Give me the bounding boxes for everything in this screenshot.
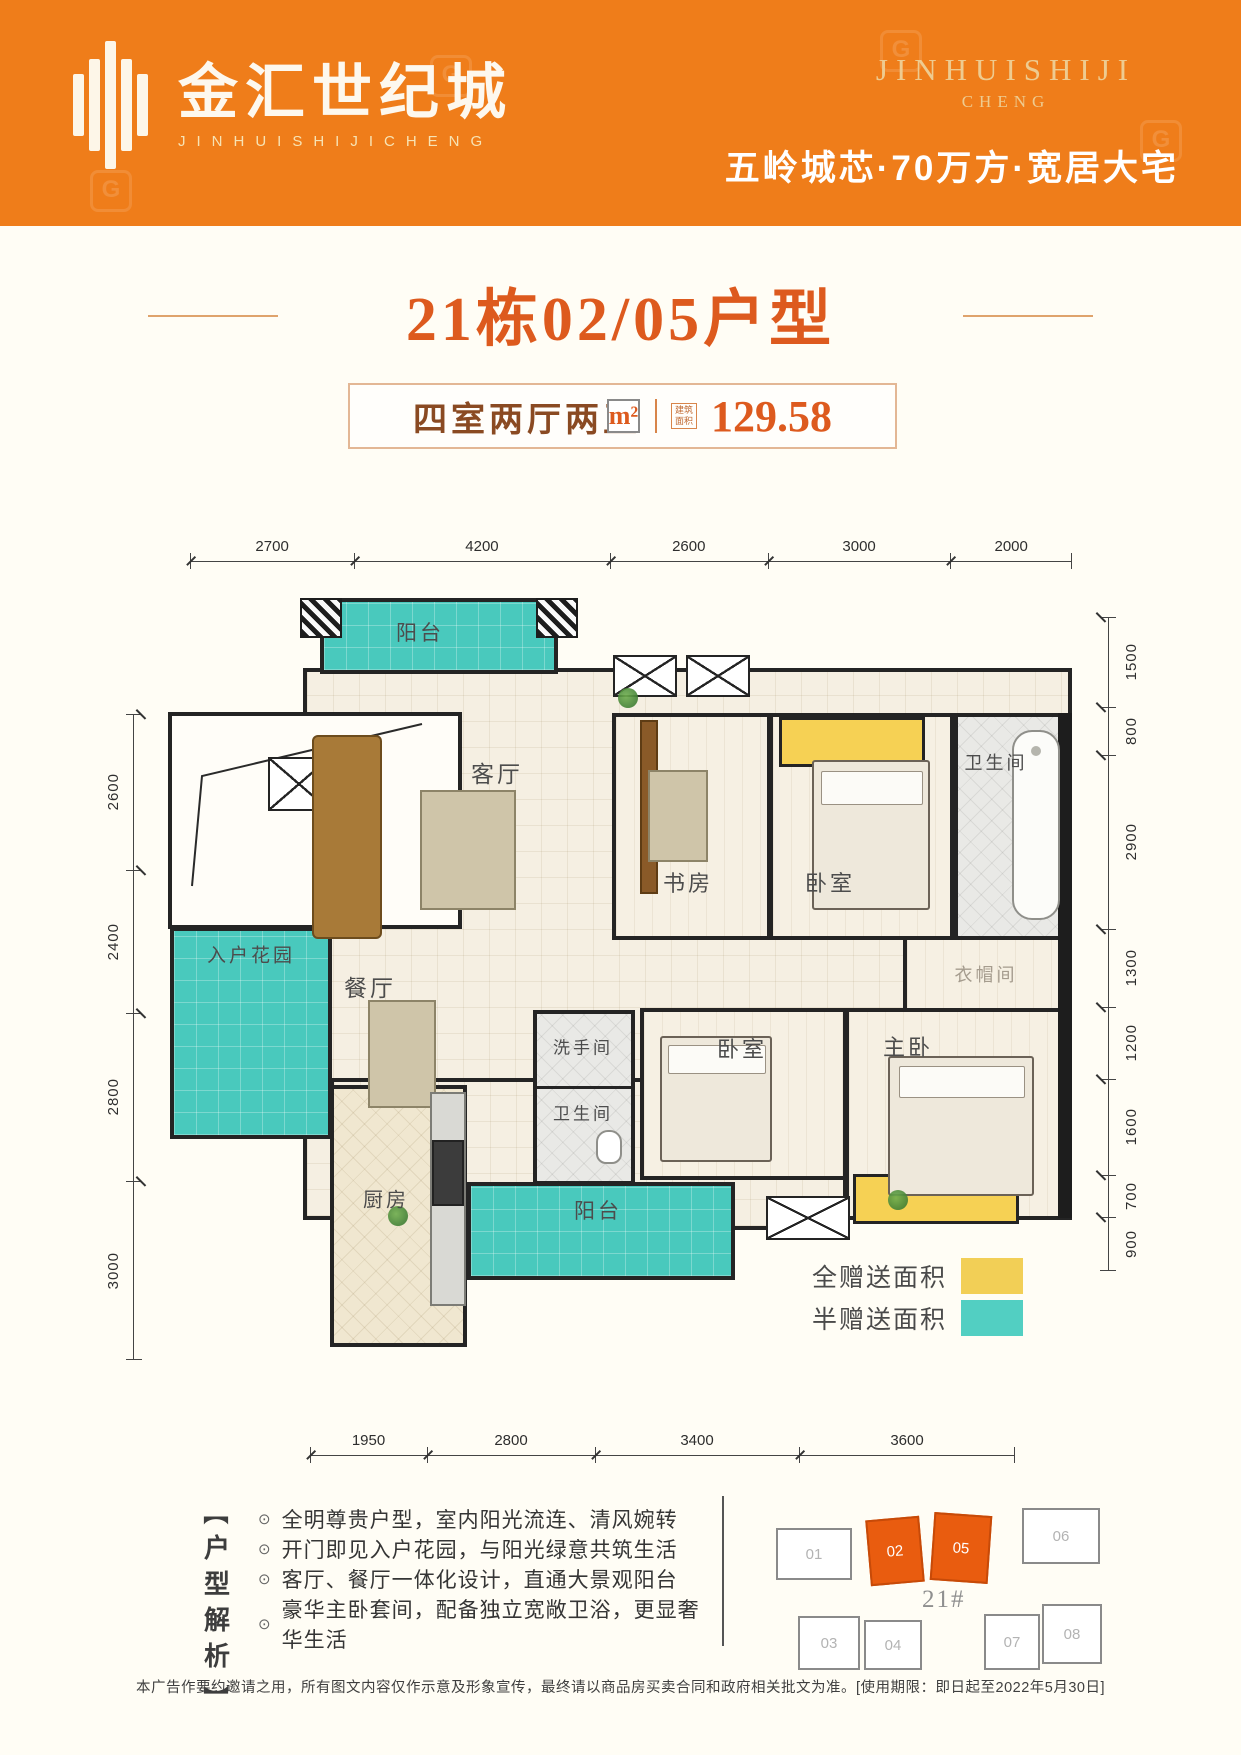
selling-point-text: 客厅、餐厅一体化设计，直通大景观阳台 <box>282 1564 678 1594</box>
room-label-kitchen: 厨房 <box>363 1184 409 1213</box>
bullet-icon: ⊙ <box>258 1615 272 1633</box>
unit-number: 03 <box>821 1635 838 1652</box>
dimension-chain-top: 2700 4200 2600 3000 2000 <box>190 538 1072 568</box>
wall-hatch <box>300 598 342 638</box>
unit-block-07: 07 <box>984 1614 1040 1670</box>
dim-value: 2800 <box>105 1078 122 1115</box>
room-label-bath-mid: 卫生间 <box>553 1100 613 1125</box>
outer-wall <box>1058 713 1072 1218</box>
legend-half-gift-swatch <box>961 1300 1023 1336</box>
unit-block-03: 03 <box>798 1616 860 1670</box>
legend-full-gift-label: 全赠送面积 <box>812 1258 947 1294</box>
dimension-chain-left: 2600 2400 2800 3000 <box>92 714 134 1360</box>
dimension-chain-right: 1500 800 2900 1300 1200 1600 700 900 <box>1108 617 1152 1271</box>
dim-value: 3400 <box>680 1432 713 1449</box>
plant-icon <box>888 1190 908 1210</box>
bullet-icon: ⊙ <box>258 1540 272 1558</box>
room-label-bathroom-top: 卫生间 <box>965 749 1028 775</box>
sofa-icon <box>312 735 382 939</box>
building-number-label: 21# <box>922 1586 966 1614</box>
unit-number: 07 <box>1004 1634 1021 1651</box>
floor-area-unit: m² <box>607 399 640 433</box>
toilet-icon <box>596 1130 622 1164</box>
dim-value: 2700 <box>255 538 288 555</box>
dim-value: 2600 <box>672 538 705 555</box>
unit-number: 02 <box>886 1542 904 1560</box>
room-label-bedroom-mid: 卧室 <box>717 1032 767 1064</box>
selling-points-list: ⊙ 全明尊贵户型，室内阳光流连、清风婉转 ⊙ 开门即见入户花园，与阳光绿意共筑生… <box>258 1504 708 1646</box>
room-label-master: 主卧 <box>883 1030 933 1062</box>
dining-table-icon <box>368 1000 436 1108</box>
selling-point-item: ⊙ 开门即见入户花园，与阳光绿意共筑生活 <box>258 1534 708 1564</box>
dimension-chain-bottom: 1950 2800 3400 3600 <box>310 1432 1015 1462</box>
desk-icon <box>648 770 708 862</box>
floor-area-stamp-icon: 建筑面积 <box>671 403 697 429</box>
dim-value: 900 <box>1123 1230 1140 1258</box>
bullet-icon: ⊙ <box>258 1570 272 1588</box>
unit-block-06: 06 <box>1022 1508 1100 1564</box>
ac-unit-icon <box>766 1196 850 1240</box>
room-label-dining: 餐厅 <box>344 969 396 1003</box>
unit-block-08: 08 <box>1042 1604 1102 1664</box>
room-label-bedroom-top: 卧室 <box>805 866 855 898</box>
room-label-living: 客厅 <box>471 755 523 789</box>
room-label-balcony-bottom: 阳台 <box>574 1195 622 1225</box>
brand-name: 金汇世纪城 <box>178 61 513 124</box>
dim-value: 700 <box>1123 1182 1140 1210</box>
dim-value: 1500 <box>1123 643 1140 680</box>
plant-icon <box>618 688 638 708</box>
watermark-icon: G <box>90 170 132 212</box>
dim-value: 2600 <box>105 773 122 810</box>
spec-badge: 四室两厅两卫 建筑面积 129.58 m² <box>348 383 897 449</box>
dim-value: 2900 <box>1123 823 1140 860</box>
dim-value: 2400 <box>105 923 122 960</box>
dim-value: 4200 <box>465 538 498 555</box>
brand-name-pinyin: JINHUISHIJICHENG <box>178 133 513 150</box>
wall-hatch <box>536 598 578 638</box>
unit-block-02-highlighted: 02 <box>865 1516 925 1586</box>
selling-point-item: ⊙ 客厅、餐厅一体化设计，直通大景观阳台 <box>258 1564 708 1594</box>
unit-block-05-highlighted: 05 <box>930 1512 993 1584</box>
unit-number: 04 <box>885 1637 902 1654</box>
wordmark-line1: JINHUISHIJI <box>841 52 1171 88</box>
legend-full-gift-swatch <box>961 1258 1023 1294</box>
room-label-balcony-top: 阳台 <box>396 617 444 647</box>
selling-point-text: 全明尊贵户型，室内阳光流连、清风婉转 <box>282 1504 678 1534</box>
dim-value: 3600 <box>890 1432 923 1449</box>
section-divider <box>722 1496 724 1646</box>
stove-icon <box>432 1140 464 1206</box>
brand-wordmark: JINHUISHIJI CHENG <box>841 52 1171 112</box>
bullet-icon: ⊙ <box>258 1510 272 1528</box>
dim-value: 1200 <box>1123 1024 1140 1061</box>
dim-value: 2800 <box>494 1432 527 1449</box>
dim-value: 3000 <box>842 538 875 555</box>
selling-point-item: ⊙ 豪华主卧套间，配备独立宽敞卫浴，更显奢华生活 <box>258 1594 708 1654</box>
dim-value: 2000 <box>994 538 1027 555</box>
unit-number: 08 <box>1064 1626 1081 1643</box>
dim-value: 1300 <box>1123 949 1140 986</box>
floor-area-value: 129.58 <box>711 391 832 442</box>
poster-page: G G G G 金汇世纪城 JINHUISHIJICHENG JINHUISHI… <box>0 0 1241 1755</box>
dim-value: 800 <box>1123 717 1140 745</box>
badge-divider <box>655 399 657 433</box>
legend-half-gift: 半赠送面积 <box>812 1300 1023 1336</box>
selling-point-text: 开门即见入户花园，与阳光绿意共筑生活 <box>282 1534 678 1564</box>
unit-number: 06 <box>1053 1528 1070 1545</box>
room-label-study: 书房 <box>663 866 713 898</box>
analysis-title-text: 户型解析 <box>198 1534 235 1678</box>
selling-point-item: ⊙ 全明尊贵户型，室内阳光流连、清风婉转 <box>258 1504 708 1534</box>
legend-half-gift-label: 半赠送面积 <box>812 1300 947 1336</box>
bed-icon <box>888 1056 1034 1196</box>
dim-value: 1950 <box>352 1432 385 1449</box>
selling-point-text: 豪华主卧套间，配备独立宽敞卫浴，更显奢华生活 <box>282 1594 708 1654</box>
legal-disclaimer: 本广告作要约邀请之用，所有图文内容仅作示意及形象宣传，最终请以商品房买卖合同和政… <box>0 1676 1241 1697</box>
unit-title: 21栋02/05户型 <box>0 268 1241 358</box>
project-tagline: 五岭城芯·70万方·宽居大宅 <box>725 140 1179 191</box>
unit-number: 01 <box>806 1546 823 1563</box>
brand-logo: 金汇世纪城 JINHUISHIJICHENG <box>62 40 513 170</box>
legend-full-gift: 全赠送面积 <box>812 1258 1023 1294</box>
site-plan-diagram: 01 02 05 06 03 04 07 08 21# <box>770 1488 1110 1678</box>
unit-block-01: 01 <box>776 1528 852 1580</box>
ac-unit-icon <box>686 655 750 697</box>
unit-number: 05 <box>952 1539 970 1557</box>
dim-value: 3000 <box>105 1252 122 1289</box>
dim-value: 1600 <box>1123 1108 1140 1145</box>
header-banner: G G G G 金汇世纪城 JINHUISHIJICHENG JINHUISHI… <box>0 0 1241 226</box>
bracket-top-icon: ︻ <box>203 1500 229 1526</box>
building-logo-icon <box>62 40 158 170</box>
room-label-cloakroom: 衣帽间 <box>955 961 1018 987</box>
wordmark-line2: CHENG <box>841 92 1171 112</box>
coffee-table-icon <box>420 790 516 910</box>
room-label-washroom: 洗手间 <box>553 1034 613 1059</box>
room-label-entry-garden: 入户花园 <box>207 941 295 968</box>
unit-block-04: 04 <box>864 1620 922 1670</box>
